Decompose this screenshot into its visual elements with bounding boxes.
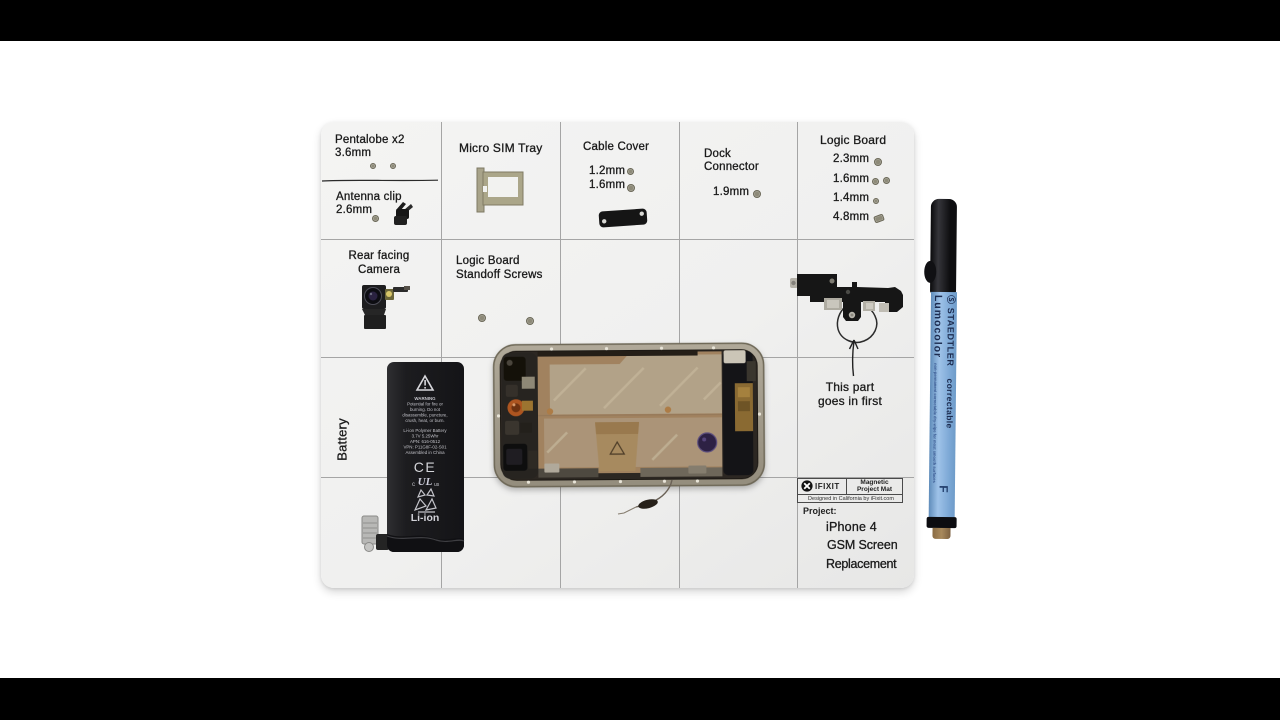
svg-text:us: us xyxy=(434,482,440,488)
svg-text:VPN: P11G8F-02-S01: VPN: P11G8F-02-S01 xyxy=(403,445,447,450)
svg-text:APN: 616-0512: APN: 616-0512 xyxy=(410,439,441,444)
svg-text:UL: UL xyxy=(418,476,433,488)
svg-text:3.7V 5.25Whr: 3.7V 5.25Whr xyxy=(412,434,439,439)
svg-text:WARNING: WARNING xyxy=(414,396,436,401)
svg-text:burning. Do not: burning. Do not xyxy=(410,407,441,412)
svg-text:c: c xyxy=(412,482,415,488)
svg-text:disassemble, puncture,: disassemble, puncture, xyxy=(402,413,447,418)
svg-text:crush, heat, or burn.: crush, heat, or burn. xyxy=(405,418,444,423)
svg-text:CE: CE xyxy=(414,459,436,475)
svg-text:Assembled in China: Assembled in China xyxy=(405,450,445,455)
svg-text:Potential for fire or: Potential for fire or xyxy=(407,402,443,407)
svg-text:Li-ion Polymer Battery: Li-ion Polymer Battery xyxy=(403,428,447,433)
svg-text:Li-ion: Li-ion xyxy=(411,512,440,524)
